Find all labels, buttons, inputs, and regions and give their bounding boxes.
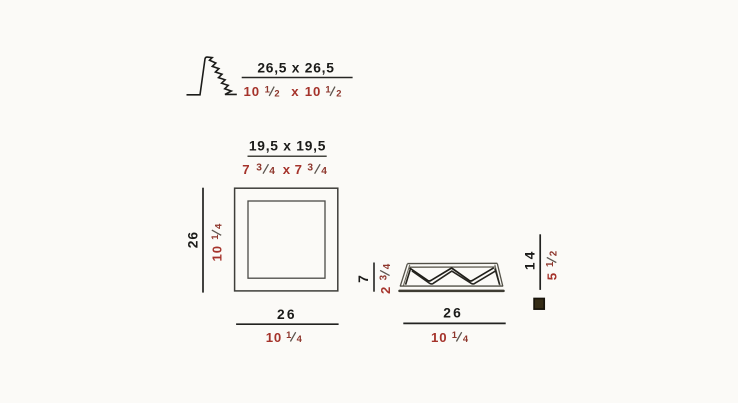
svg-text:2: 2 bbox=[336, 87, 341, 98]
svg-text:1: 1 bbox=[286, 329, 291, 340]
svg-text:x: x bbox=[291, 84, 299, 99]
svg-text:10: 10 bbox=[305, 84, 321, 99]
svg-text:7: 7 bbox=[295, 162, 303, 177]
svg-text:4: 4 bbox=[297, 333, 303, 344]
svg-text:7: 7 bbox=[356, 274, 371, 282]
svg-text:26: 26 bbox=[277, 307, 297, 322]
svg-text:1: 1 bbox=[265, 84, 270, 95]
svg-text:26: 26 bbox=[443, 305, 463, 320]
svg-text:10: 10 bbox=[266, 330, 282, 345]
svg-text:4: 4 bbox=[214, 223, 225, 229]
svg-text:5: 5 bbox=[545, 272, 560, 280]
svg-text:2: 2 bbox=[549, 250, 560, 256]
svg-text:26: 26 bbox=[186, 231, 201, 248]
svg-text:14: 14 bbox=[522, 249, 537, 270]
svg-text:3: 3 bbox=[307, 162, 313, 173]
svg-text:2: 2 bbox=[378, 286, 393, 294]
svg-text:10: 10 bbox=[431, 330, 447, 345]
svg-text:2: 2 bbox=[274, 87, 279, 98]
svg-text:7: 7 bbox=[242, 162, 250, 177]
svg-text:x: x bbox=[283, 162, 291, 177]
svg-text:1: 1 bbox=[325, 84, 330, 95]
svg-text:10: 10 bbox=[210, 245, 225, 261]
svg-text:10: 10 bbox=[244, 84, 260, 99]
svg-text:4: 4 bbox=[269, 166, 275, 177]
svg-text:19,5 x 19,5: 19,5 x 19,5 bbox=[249, 138, 326, 153]
svg-text:3: 3 bbox=[256, 162, 262, 173]
svg-text:4: 4 bbox=[463, 333, 469, 344]
svg-text:4: 4 bbox=[321, 166, 327, 177]
svg-text:26,5 x 26,5: 26,5 x 26,5 bbox=[257, 60, 334, 75]
svg-text:4: 4 bbox=[382, 263, 393, 269]
svg-text:3: 3 bbox=[378, 274, 389, 280]
svg-text:1: 1 bbox=[452, 329, 457, 340]
